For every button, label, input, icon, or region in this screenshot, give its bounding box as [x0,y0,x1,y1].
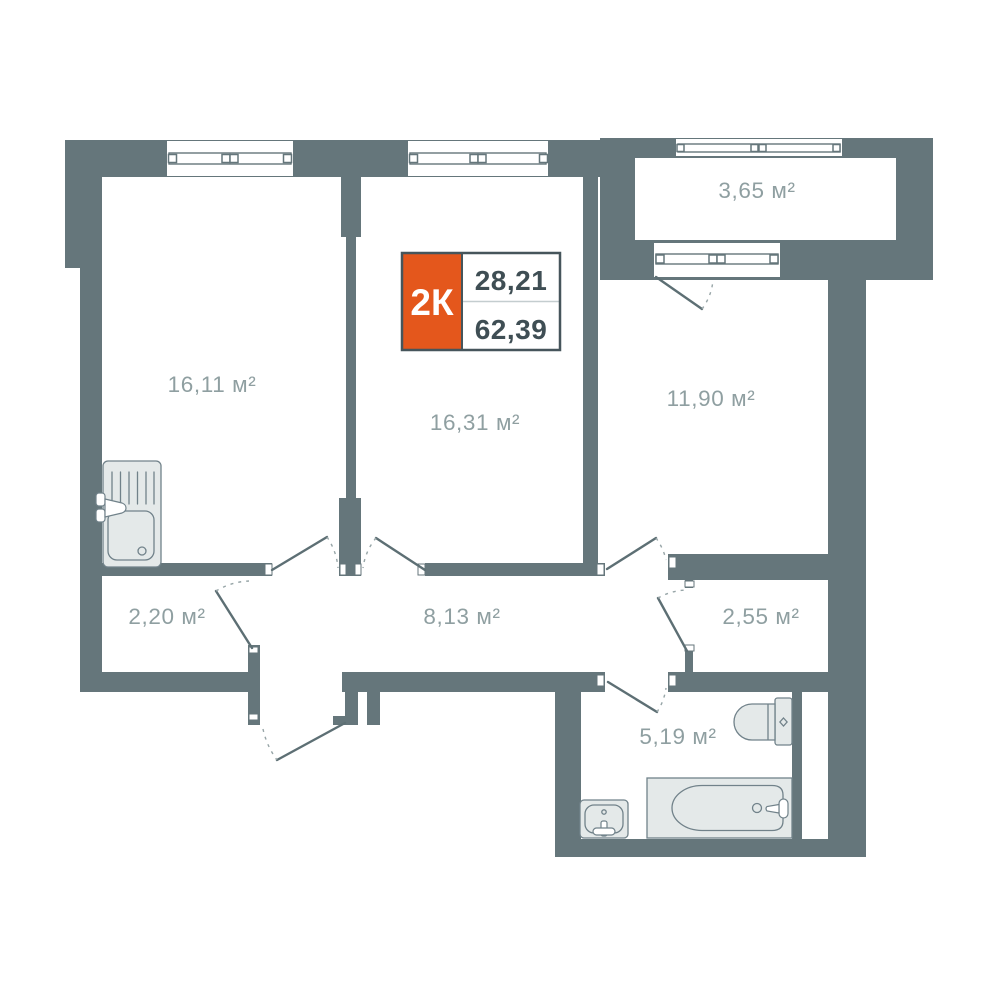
door-jambs [249,557,694,720]
window-icon [408,141,548,176]
bathroom-area-label: 5,19 м² [639,724,716,749]
storage-area-label: 2,55 м² [722,604,799,629]
wall-segment [668,554,830,580]
floor-plan-svg: 16,11 м² 16,31 м² 11,90 м² 3,65 м² 2,20 … [0,0,1000,1000]
room2-area-label: 16,31 м² [430,410,520,435]
door-storage [658,590,687,651]
room1-area-label: 16,11 м² [168,372,257,397]
wall-segment [792,690,802,840]
door-room-1 [272,537,338,570]
living-area-value: 28,21 [475,265,548,296]
unit-info-card: 2К 28,21 62,39 [402,253,560,350]
washbasin-icon [580,800,628,838]
wall-segment [65,140,102,268]
wall-segment [367,692,380,725]
balcony-window-icon [676,139,842,156]
wall-segment [80,268,102,690]
unit-type-label: 2К [410,282,454,323]
wall-segment [668,672,828,692]
floor-plan-page: 16,11 м² 16,31 м² 11,90 м² 3,65 м² 2,20 … [0,0,1000,1000]
balcony-area-label: 3,65 м² [718,178,795,203]
door-room-2 [363,538,425,570]
wall-segment [345,692,358,725]
balcony-door-window-icon [654,243,780,277]
door-balcony [656,277,713,309]
window-icon [167,141,293,176]
wall-segment [555,839,866,857]
door-entrance [263,723,345,760]
toilet-icon [734,698,792,745]
wall-segment [248,645,260,725]
wall-segment [346,237,356,499]
wall-segment [555,672,581,857]
bathtub-icon [647,778,792,838]
room3-area-label: 11,90 м² [667,386,756,411]
wall-segment [600,138,635,240]
wall-segment [80,672,252,692]
wall-segment [828,280,866,857]
total-area-value: 62,39 [475,314,548,345]
walls [65,138,933,857]
wall-segment [685,650,693,674]
wardrobe-area-label: 2,20 м² [128,604,205,629]
wall-segment [425,563,605,576]
kitchen-sink-icon [96,461,161,567]
hallway-area-label: 8,13 м² [423,604,500,629]
door-room-3 [607,538,666,569]
door-wardrobe [216,581,252,648]
wall-segment [583,140,598,576]
wall-segment [341,177,361,237]
door-bathroom [608,682,666,712]
